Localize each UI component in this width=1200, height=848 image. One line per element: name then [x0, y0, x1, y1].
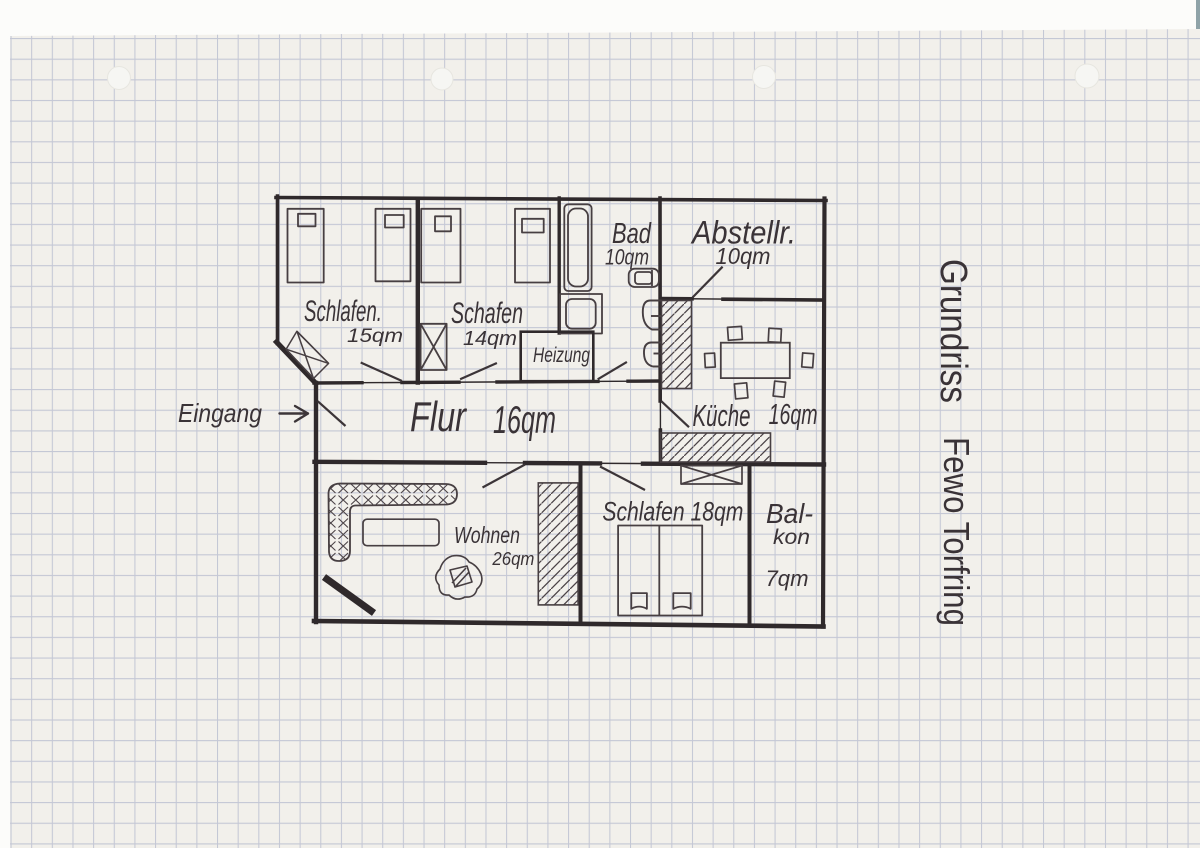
svg-text:Fewo Torfring: Fewo Torfring — [936, 437, 977, 626]
svg-text:Grundriss: Grundriss — [932, 259, 974, 403]
svg-text:Schafen: Schafen — [451, 297, 523, 330]
svg-text:Flur: Flur — [410, 393, 468, 440]
svg-text:26qm: 26qm — [491, 549, 534, 569]
svg-text:15qm: 15qm — [347, 326, 403, 347]
svg-text:Eingang: Eingang — [178, 398, 262, 428]
svg-text:Wohnen: Wohnen — [454, 522, 520, 548]
svg-text:Schlafen.: Schlafen. — [304, 295, 382, 328]
svg-text:16qm: 16qm — [493, 399, 556, 442]
svg-text:Bal-: Bal- — [766, 498, 813, 529]
svg-text:14qm: 14qm — [463, 328, 517, 350]
svg-text:Schlafen 18qm: Schlafen 18qm — [602, 497, 743, 527]
svg-text:16qm: 16qm — [769, 399, 818, 431]
svg-text:10qm: 10qm — [716, 243, 771, 269]
svg-text:Heizung: Heizung — [533, 344, 590, 367]
svg-text:kon: kon — [773, 526, 810, 549]
svg-text:7qm: 7qm — [766, 566, 809, 591]
svg-text:10qm: 10qm — [605, 245, 649, 270]
svg-text:Küche: Küche — [693, 398, 751, 433]
